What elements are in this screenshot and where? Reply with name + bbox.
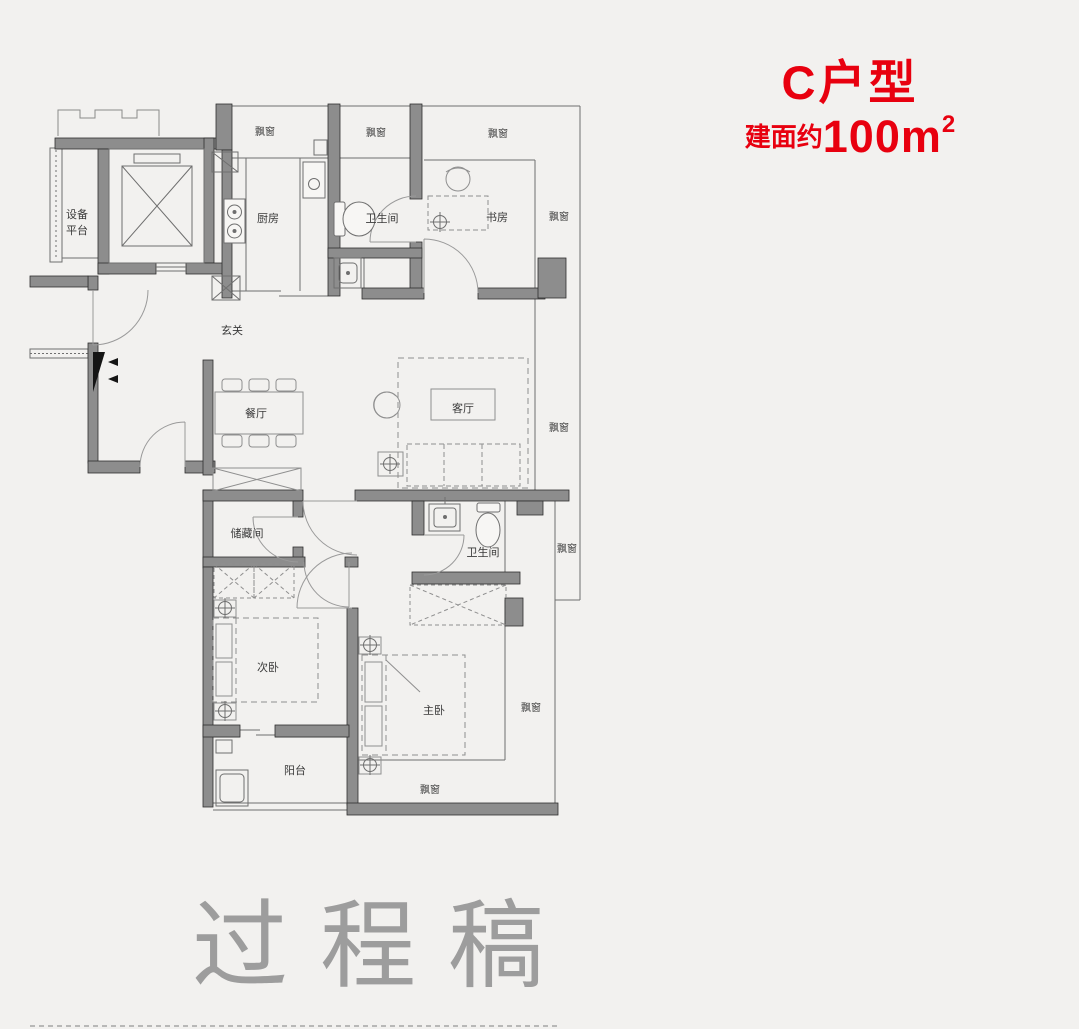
equipment-platform-rail (50, 148, 62, 262)
kitchen-fixtures (224, 140, 327, 243)
rug (398, 358, 528, 488)
pillow (365, 662, 382, 702)
sofa (407, 444, 520, 486)
chair (276, 379, 296, 391)
floor-plan-page: 设备 平台 厨房 卫生间 书房 玄关 餐厅 客厅 储藏间 卫生间 次卧 主卧 阳… (0, 0, 1079, 1029)
entry-side-door-arc (140, 422, 185, 467)
shelf (216, 740, 232, 753)
pillow (365, 706, 382, 746)
area-value: 100m (823, 111, 942, 162)
label-master-bedroom: 主卧 (423, 704, 445, 717)
chair (446, 167, 470, 191)
label-storage: 储藏间 (231, 526, 264, 540)
chair (249, 435, 269, 447)
chair (276, 435, 296, 447)
fridge-icon (314, 140, 327, 155)
parapet-outline (58, 110, 159, 136)
dimension-strip (30, 349, 88, 358)
elevator-shaft (109, 149, 204, 271)
master-bedroom-furniture (359, 585, 506, 774)
living-furniture (374, 358, 528, 488)
toilet-icon (476, 513, 500, 547)
pillow (216, 624, 232, 658)
label-bay-window: 飘窗 (488, 127, 508, 140)
draft-watermark: 过程稿 (192, 868, 612, 1007)
bathroom-lower-door-arc (424, 535, 464, 575)
entry-door-arc (93, 290, 148, 345)
label-bay-window: 飘窗 (420, 783, 440, 796)
second-bedroom-furniture (213, 564, 318, 720)
chair (222, 379, 242, 391)
title-block: C户型 建面约100m2 (700, 58, 1000, 163)
label-balcony: 阳台 (284, 763, 306, 777)
label-second-bedroom: 次卧 (257, 660, 279, 674)
area-superscript: 2 (942, 111, 955, 138)
balcony-fixtures (216, 740, 248, 806)
label-bay-window: 飘窗 (255, 125, 275, 138)
label-entrance: 玄关 (221, 323, 243, 337)
stove-icon (224, 199, 245, 243)
pillow (216, 662, 232, 696)
label-bathroom-upper: 卫生间 (366, 211, 399, 225)
area-line: 建面约100m2 (700, 111, 1000, 163)
label-bay-window: 飘窗 (366, 126, 386, 139)
bed-master (362, 655, 465, 755)
desk (428, 196, 488, 230)
bathroom-lower-fixtures (429, 497, 500, 547)
label-study: 书房 (486, 211, 508, 224)
bed-second (213, 618, 318, 702)
kitchen-sink-icon (303, 162, 325, 198)
label-bay-window: 飘窗 (521, 701, 541, 714)
toilet-tank-icon (477, 503, 500, 512)
label-kitchen: 厨房 (257, 212, 279, 225)
label-equipment-platform-1: 设备 (66, 207, 88, 221)
label-bay-window: 飘窗 (549, 421, 569, 434)
dining-furniture (213, 379, 303, 491)
hall-door-arc (303, 501, 357, 555)
label-bathroom-lower: 卫生间 (467, 545, 500, 559)
unit-type-title: C户型 (700, 58, 1000, 107)
chair (222, 435, 242, 447)
area-prefix: 建面约 (745, 122, 823, 152)
label-dining: 餐厅 (245, 406, 267, 420)
bay-window-labels: 飘窗 飘窗 飘窗 飘窗 飘窗 飘窗 飘窗 飘窗 (255, 125, 577, 796)
label-bay-window: 飘窗 (557, 542, 577, 555)
study-furniture (428, 167, 488, 230)
second-bedroom-door-arc (304, 562, 349, 607)
label-living: 客厅 (452, 401, 474, 415)
study-door-arc (424, 239, 478, 293)
label-bay-window: 飘窗 (549, 210, 569, 223)
label-equipment-platform-2: 平台 (66, 223, 88, 237)
chair (249, 379, 269, 391)
